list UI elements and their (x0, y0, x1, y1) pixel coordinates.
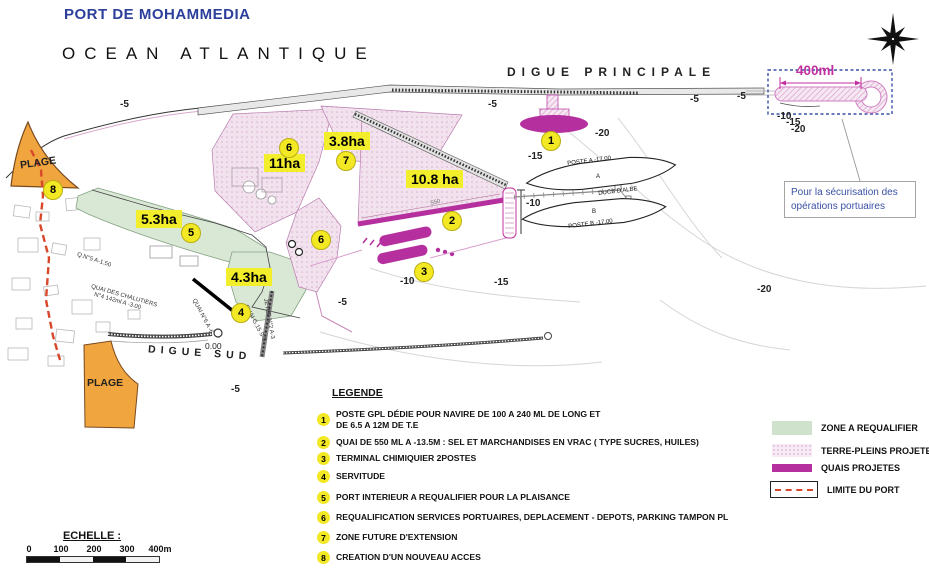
poste-gpl-shape (520, 115, 588, 133)
swatch-zone-requalifier (772, 421, 812, 435)
poste-a-letter: A (596, 174, 600, 180)
scale-seg-4 (126, 557, 159, 562)
depth-label: -5 (488, 99, 497, 110)
legend-item-3: 3 TERMINAL CHIMIQUIER 2POSTES (317, 452, 476, 465)
extension-length-label: 400ml (796, 63, 834, 78)
depth-label: -10 (526, 198, 540, 209)
key-zone-requalifier: ZONE A REQUALIFIER (772, 421, 918, 435)
key-limite-port: LIMITE DU PORT (770, 481, 900, 498)
scale-tick-100: 100 (53, 544, 68, 554)
depth-label: -5 (690, 94, 699, 105)
digue-principale-shape (198, 85, 764, 115)
legend-text-3: TERMINAL CHIMIQUIER 2POSTES (336, 453, 476, 464)
depth-label: -20 (791, 124, 805, 135)
depth-label: -15 (528, 151, 542, 162)
map-marker-6a: 6 (279, 138, 299, 158)
key-label-zone: ZONE A REQUALIFIER (821, 423, 918, 433)
legend-num-5: 5 (317, 491, 330, 504)
legend-text-5: PORT INTERIEUR A REQUALIFIER POUR LA PLA… (336, 492, 570, 503)
legend-item-8: 8 CREATION D'UN NOUVEAU ACCES (317, 551, 481, 564)
scale-title: ECHELLE : (26, 530, 158, 542)
swatch-limite-port (770, 481, 818, 498)
legend: LEGENDE 1 POSTE GPL DÉDIE POUR NAVIRE DE… (317, 387, 787, 399)
key-quais-projetes: QUAIS PROJETES (772, 463, 900, 473)
depth-label: -10 (400, 276, 414, 287)
legend-text-1b: DE 6.5 A 12M DE T.E (336, 420, 600, 431)
legend-item-2: 2 QUAI DE 550 ML A -13.5M : SEL ET MARCH… (317, 436, 699, 449)
legend-text-7: ZONE FUTURE D'EXTENSION (336, 532, 457, 543)
key-label-limite: LIMITE DU PORT (827, 485, 900, 495)
depth-label: -20 (757, 284, 771, 295)
callout-line1: Pour la sécurisation des (791, 186, 909, 200)
south-breakwater-shape (283, 333, 552, 354)
depth-label: -20 (595, 128, 609, 139)
legend-text-2: QUAI DE 550 ML A -13.5M : SEL ET MARCHAN… (336, 437, 699, 448)
scale-tick-0: 0 (26, 544, 31, 554)
swatch-terre-pleins (772, 444, 812, 457)
ocean-label: OCEAN ATLANTIQUE (62, 44, 376, 64)
depth-label: -5 (120, 99, 129, 110)
scale-bar-segments (26, 556, 160, 563)
legend-num-8: 8 (317, 551, 330, 564)
area-label-5-3ha: 5.3ha (136, 210, 182, 228)
map-marker-1: 1 (541, 131, 561, 151)
key-label-terre-pleins: TERRE-PLEINS PROJETES (821, 446, 929, 456)
key-label-quais: QUAIS PROJETES (821, 463, 900, 473)
legend-num-1: 1 (317, 413, 330, 426)
poste-b-letter: B (592, 209, 596, 215)
map-marker-8: 8 (43, 180, 63, 200)
legend-text-8: CREATION D'UN NOUVEAU ACCES (336, 552, 481, 563)
legend-num-4: 4 (317, 470, 330, 483)
callout-leader-line (842, 119, 860, 181)
legend-num-7: 7 (317, 531, 330, 544)
plage-south-label: PLAGE (87, 377, 123, 389)
area-label-3-8ha: 3.8ha (324, 132, 370, 150)
page-title: PORT DE MOHAMMEDIA (64, 6, 251, 23)
compass-icon (867, 13, 919, 65)
scale-tick-300: 300 (119, 544, 134, 554)
depth-label: -15 (494, 277, 508, 288)
map-marker-7: 7 (336, 151, 356, 171)
extension-400ml-shape (746, 70, 892, 181)
scale-tick-200: 200 (86, 544, 101, 554)
scale-seg-3 (93, 557, 126, 562)
map-marker-3: 3 (414, 262, 434, 282)
map-marker-6b: 6 (311, 230, 331, 250)
port-map-page: { "header": { "title": "PORT DE MOHAMMED… (0, 0, 929, 582)
swatch-quais-projetes (772, 464, 812, 472)
legend-item-5: 5 PORT INTERIEUR A REQUALIFIER POUR LA P… (317, 491, 570, 504)
depth-label: -5 (231, 384, 240, 395)
legend-item-1: 1 POSTE GPL DÉDIE POUR NAVIRE DE 100 A 2… (317, 409, 600, 430)
callout-line2: opérations portuaires (791, 200, 909, 214)
depth-label: -5 (338, 297, 347, 308)
scale-tick-400: 400m (148, 544, 171, 554)
legend-num-3: 3 (317, 452, 330, 465)
legend-text-1a: POSTE GPL DÉDIE POUR NAVIRE DE 100 A 240… (336, 409, 600, 420)
legend-title: LEGENDE (332, 387, 787, 399)
legend-item-4: 4 SERVITUDE (317, 470, 385, 483)
scale-seg-2 (60, 557, 93, 562)
area-label-10-8ha: 10.8 ha (406, 170, 463, 188)
legend-item-7: 7 ZONE FUTURE D'EXTENSION (317, 531, 457, 544)
legend-text-4: SERVITUDE (336, 471, 385, 482)
legend-num-6: 6 (317, 511, 330, 524)
map-marker-4: 4 (231, 303, 251, 323)
security-callout: Pour la sécurisation des opérations port… (784, 181, 916, 218)
scale-seg-1 (27, 557, 60, 562)
legend-text-6: REQUALIFICATION SERVICES PORTUAIRES, DEP… (336, 512, 728, 523)
area-label-4-3ha: 4.3ha (226, 268, 272, 286)
legend-num-2: 2 (317, 436, 330, 449)
scale-bar: ECHELLE : 0 100 200 300 400m (26, 530, 166, 563)
map-marker-5: 5 (181, 223, 201, 243)
scale-ticks: 0 100 200 300 400m (26, 544, 166, 556)
digue-principale-label: DIGUE PRINCIPALE (507, 65, 716, 79)
limite-dash-sample (775, 489, 813, 491)
depth-label: -5 (737, 91, 746, 102)
key-terre-pleins: TERRE-PLEINS PROJETES (772, 444, 929, 457)
map-marker-2: 2 (442, 211, 462, 231)
legend-item-6: 6 REQUALIFICATION SERVICES PORTUAIRES, D… (317, 511, 728, 524)
